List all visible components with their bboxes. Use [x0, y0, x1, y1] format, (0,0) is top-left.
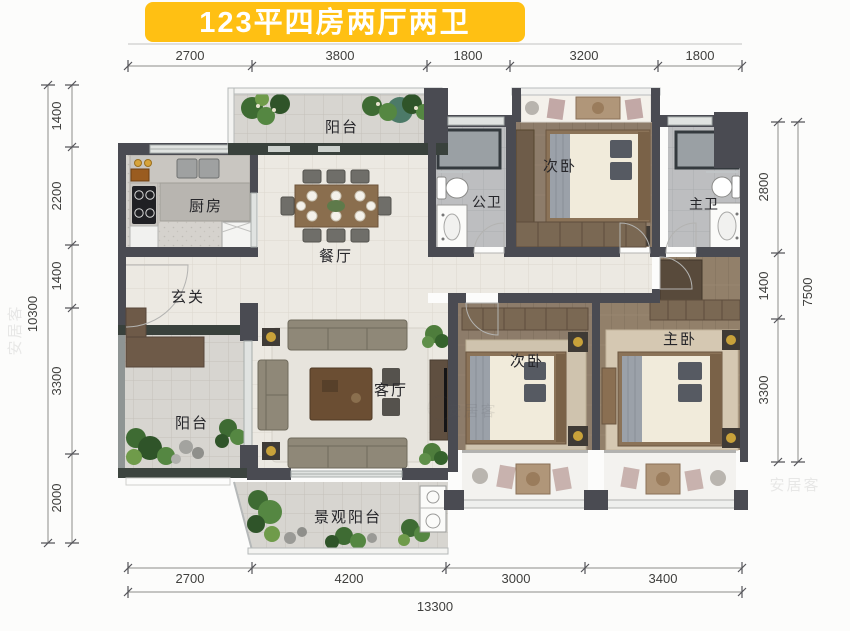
dim-right-3: 3300 [756, 376, 771, 405]
dining-chair [327, 170, 345, 183]
dim-right-1: 2800 [756, 173, 771, 202]
wall-segment [696, 247, 748, 257]
sofa-top [288, 320, 407, 350]
wall-segment [240, 445, 258, 468]
bay-inner-sill [462, 450, 588, 453]
kitchen-appliance [222, 222, 252, 250]
dim-top-5: 1800 [686, 48, 715, 63]
toilet-master [732, 176, 740, 198]
kitchen-sink-right [199, 159, 219, 178]
wall-segment [651, 88, 660, 122]
dim-left-total: 10300 [25, 296, 40, 332]
dim-left-3: 1400 [49, 262, 64, 291]
dim-top-1: 2700 [176, 48, 205, 63]
wall-segment [118, 468, 247, 478]
railing-landscape [248, 548, 448, 554]
window-master-bath [668, 117, 712, 125]
dining-chair [327, 229, 345, 242]
pillow [678, 384, 702, 402]
watermark-text: 安居客 [446, 403, 497, 420]
bay-cushion [472, 468, 488, 484]
pillow [610, 140, 632, 158]
room-label-living: 客厅 [374, 382, 408, 399]
dim-right-total: 7500 [800, 278, 815, 307]
cabinet-tall [516, 130, 534, 225]
wall-segment [506, 122, 516, 253]
window-living-balcony [244, 341, 252, 449]
kitchen-deco-bowl2 [145, 160, 152, 167]
kitchen-board [131, 169, 149, 181]
headboard [556, 354, 566, 442]
corridor-floor [428, 253, 652, 293]
room-label-guest-bath: 公卫 [472, 194, 502, 210]
wall-segment [650, 247, 666, 257]
wall-segment [240, 303, 258, 341]
dim-bottom-4: 3400 [649, 571, 678, 586]
dim-top-3: 1800 [454, 48, 483, 63]
cabinet-master [660, 260, 702, 300]
coffee-table [310, 368, 372, 420]
bay-pillow [620, 467, 639, 489]
railing-balcony-top [228, 88, 442, 94]
dining-chair [303, 229, 321, 242]
dim-top-2: 3800 [326, 48, 355, 63]
dim-bottom-2: 4200 [335, 571, 364, 586]
bay-inner-sill [604, 450, 736, 453]
foyer-bench [126, 337, 204, 367]
wall-segment [448, 303, 458, 472]
dim-left-2: 2200 [49, 182, 64, 211]
wardrobe-master [650, 300, 740, 320]
sliding-door-gap [268, 146, 290, 152]
wall-segment [247, 468, 291, 480]
bed-bench [602, 368, 616, 424]
sliding-door-gap [318, 146, 340, 152]
floorplan-canvas: 123平四房两厅两卫 2700 3800 1800 3200 1800 1400… [0, 0, 850, 631]
headboard [710, 354, 722, 444]
kitchen-glass-door [251, 193, 257, 247]
bay-window-outer [452, 500, 598, 508]
step-edge [126, 478, 230, 485]
toilet-guest [437, 177, 446, 199]
wall-segment [740, 122, 748, 462]
dimension-left: 1400 2200 1400 3300 2000 10300 [25, 81, 79, 547]
dimension-bottom: 2700 4200 3000 3400 13300 [124, 562, 746, 614]
dining-chair [281, 197, 294, 215]
room-label-balcony-top: 阳台 [325, 119, 359, 136]
wall-segment [448, 293, 466, 303]
watermark-text: 安居客 [7, 304, 24, 355]
dimension-right: 2800 1400 3300 7500 [756, 118, 815, 466]
dining-chair [303, 170, 321, 183]
wall-segment [402, 468, 448, 480]
title-badge: 123平四房两厅两卫 [145, 2, 525, 42]
room-label-kitchen: 厨房 [189, 198, 223, 215]
wall-pier [734, 490, 748, 510]
dim-bottom-1: 2700 [176, 571, 205, 586]
kitchen-cabinet [130, 226, 158, 250]
dining-chair [378, 197, 391, 215]
wall-pier [584, 490, 608, 510]
dim-bottom-3: 3000 [502, 571, 531, 586]
room-label-master-bedroom: 主卧 [663, 331, 697, 348]
bay-pillow [625, 98, 644, 120]
wall-segment [118, 247, 258, 257]
room-label-landscape-balcony: 景观阳台 [314, 509, 382, 526]
wall-segment [592, 303, 600, 450]
washing-machine [420, 486, 446, 532]
bay-pillow [684, 469, 703, 491]
bay-pillow [547, 98, 566, 120]
room-label-balcony-side: 阳台 [175, 415, 209, 432]
floorplan-page: 123平四房两厅两卫 2700 3800 1800 3200 1800 1400… [0, 0, 850, 631]
dining-chair [351, 170, 369, 183]
dim-top-4: 3200 [570, 48, 599, 63]
pillow [610, 162, 632, 180]
dining-chair [351, 229, 369, 242]
window-guest-bath [448, 117, 504, 125]
tv-screen [444, 368, 447, 432]
wall-segment [250, 155, 258, 193]
wall-segment [504, 247, 620, 257]
dimension-top: 2700 3800 1800 3200 1800 [124, 44, 746, 72]
room-label-foyer: 玄关 [171, 289, 205, 306]
room-label-master-bath: 主卫 [689, 196, 719, 212]
bay-cushion [710, 470, 726, 486]
dim-left-5: 2000 [49, 484, 64, 513]
watermark-text: 安居客 [769, 477, 820, 494]
wall-pier [444, 490, 464, 510]
pillow [678, 362, 702, 380]
dim-left-1: 1400 [49, 102, 64, 131]
living-room-set [258, 320, 448, 468]
sofa-bottom [288, 438, 407, 468]
ottoman [382, 398, 400, 416]
kitchen-sink-left [177, 159, 197, 178]
wall-segment [428, 127, 436, 253]
table-centerpiece [327, 200, 345, 212]
wall-segment [118, 143, 126, 335]
pillow [524, 384, 546, 402]
railing-balcony-left [228, 88, 234, 149]
page-title: 123平四房两厅两卫 [199, 6, 470, 39]
room-label-bedroom-second-bottom: 次卧 [510, 353, 544, 370]
wall-segment [428, 247, 474, 257]
wall-segment [498, 293, 660, 303]
dim-right-2: 1400 [756, 272, 771, 301]
wall-balcony-side [118, 335, 125, 478]
dim-left-4: 3300 [49, 367, 64, 396]
bay-window-outer [598, 500, 746, 508]
bay-cushion [525, 101, 539, 115]
headboard [638, 132, 650, 220]
room-label-dining: 餐厅 [319, 248, 353, 265]
room-label-bedroom-second-top: 次卧 [543, 158, 577, 175]
bay-window-outer-top [512, 88, 660, 95]
wall-segment [512, 88, 521, 122]
kitchen-deco-bowl [135, 160, 142, 167]
dim-bottom-total: 13300 [417, 599, 453, 614]
wall-segment [652, 122, 660, 257]
